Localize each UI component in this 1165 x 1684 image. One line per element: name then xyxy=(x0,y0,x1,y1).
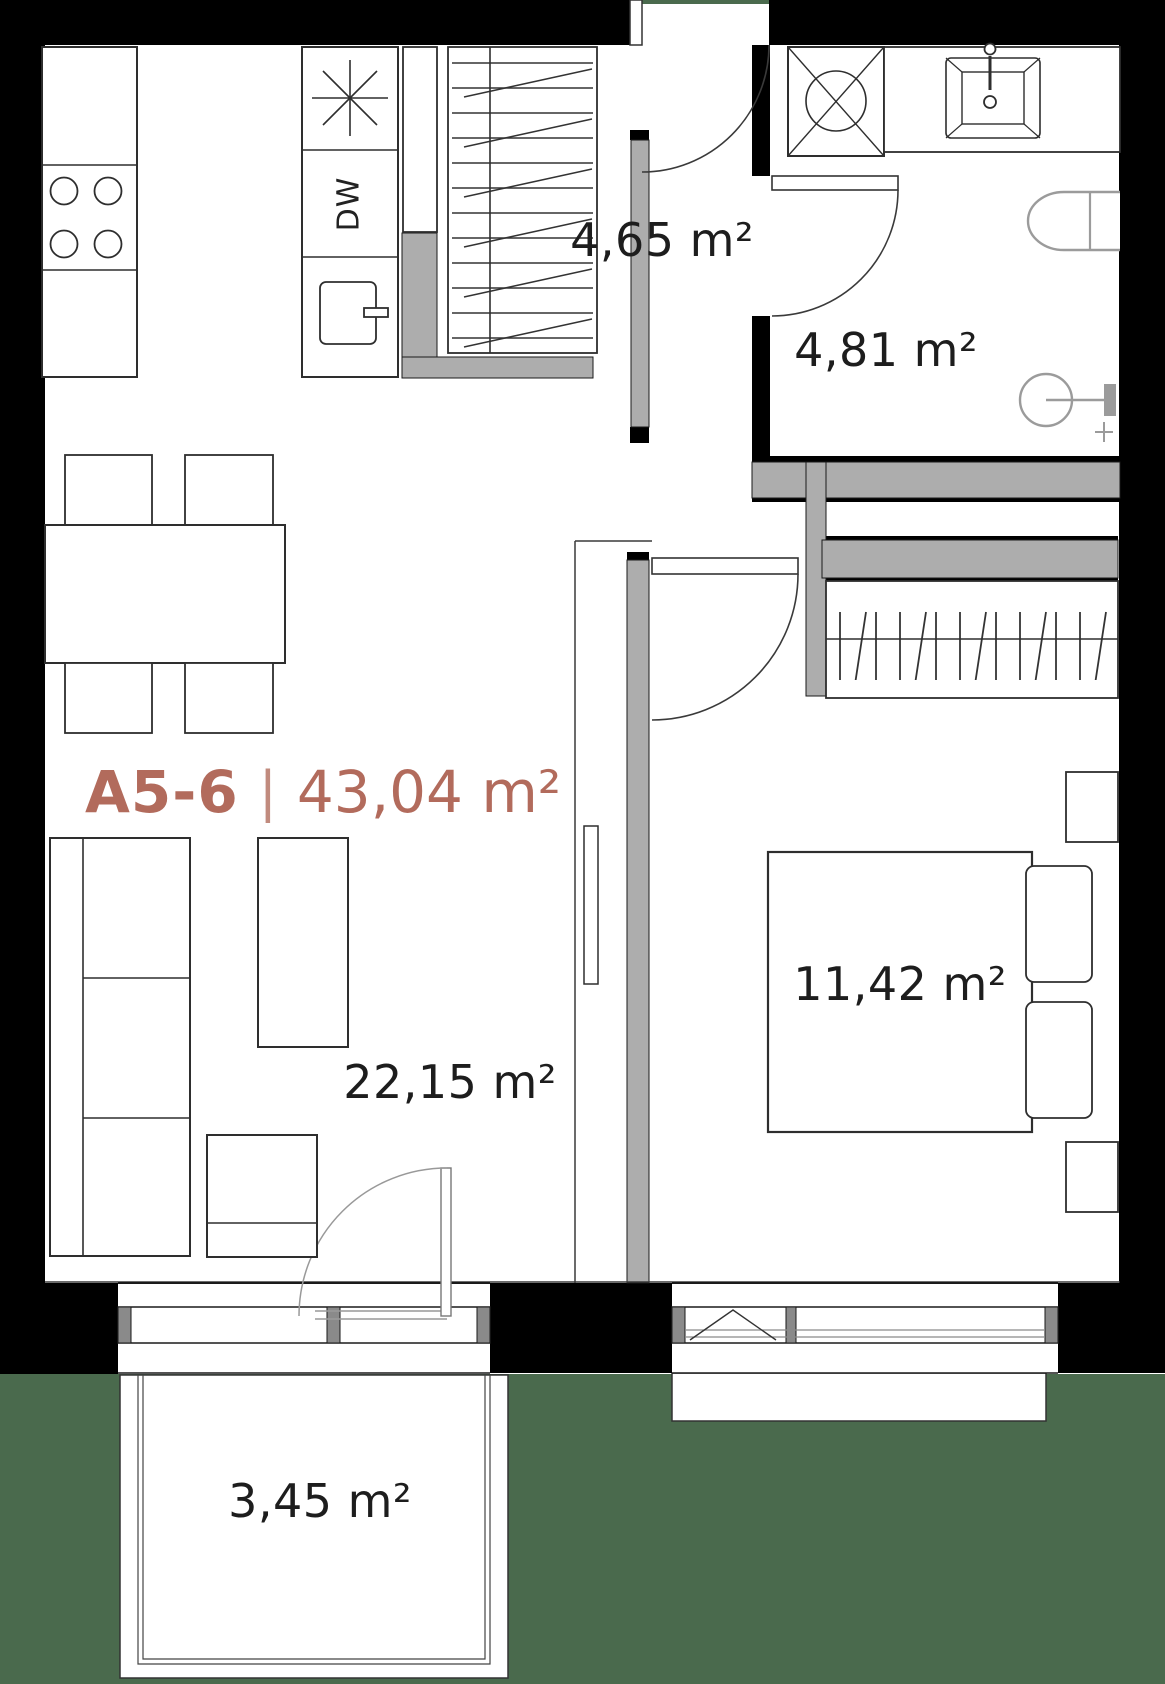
chair xyxy=(65,663,152,733)
room-label-living-kitchen: 22,15 m² xyxy=(343,1055,557,1109)
room-label-balcony: 3,45 m² xyxy=(228,1474,412,1528)
pillow xyxy=(1026,1002,1092,1118)
chair xyxy=(185,455,273,525)
unit-total-area: 43,04 m² xyxy=(297,763,561,821)
bathroom-door xyxy=(772,176,898,316)
chair xyxy=(65,455,152,525)
nightstand xyxy=(1066,1142,1118,1212)
bedroom-window-unit xyxy=(672,1283,1058,1373)
tv-stand xyxy=(207,1135,317,1257)
living-window-unit xyxy=(118,1283,490,1373)
nightstand xyxy=(1066,772,1118,842)
window-ledge xyxy=(672,1373,1046,1421)
room-label-bathroom: 4,81 m² xyxy=(794,323,978,377)
pillow xyxy=(1026,866,1092,982)
bathroom xyxy=(788,44,1120,443)
entrance-door xyxy=(630,0,769,172)
bedroom-door xyxy=(652,558,798,720)
entry-shelving xyxy=(448,47,597,353)
room-label-bedroom: 11,42 m² xyxy=(793,957,1007,1011)
room-label-hallway: 4,65 m² xyxy=(570,213,754,267)
living-furniture xyxy=(45,455,598,1257)
floor-plan: DW xyxy=(0,0,1165,1684)
coffee-table xyxy=(258,838,348,1047)
title-divider: | xyxy=(259,765,277,819)
wardrobe xyxy=(826,581,1118,698)
sink-icon xyxy=(884,44,1120,153)
radiator xyxy=(584,826,598,984)
toilet-icon xyxy=(1028,192,1120,250)
unit-title: A5-6 | 43,04 m² xyxy=(85,763,561,821)
washing-machine-icon xyxy=(788,47,884,156)
sink-star-icon xyxy=(312,60,388,136)
kitchen-counter xyxy=(42,47,137,377)
chair xyxy=(185,663,273,733)
kitchen xyxy=(42,47,597,377)
shower-icon xyxy=(1020,374,1116,442)
sofa xyxy=(50,838,190,1256)
dishwasher-label: DW xyxy=(332,177,367,232)
tall-cabinet xyxy=(403,47,437,232)
dining-table xyxy=(45,525,285,663)
unit-code: A5-6 xyxy=(85,763,239,821)
